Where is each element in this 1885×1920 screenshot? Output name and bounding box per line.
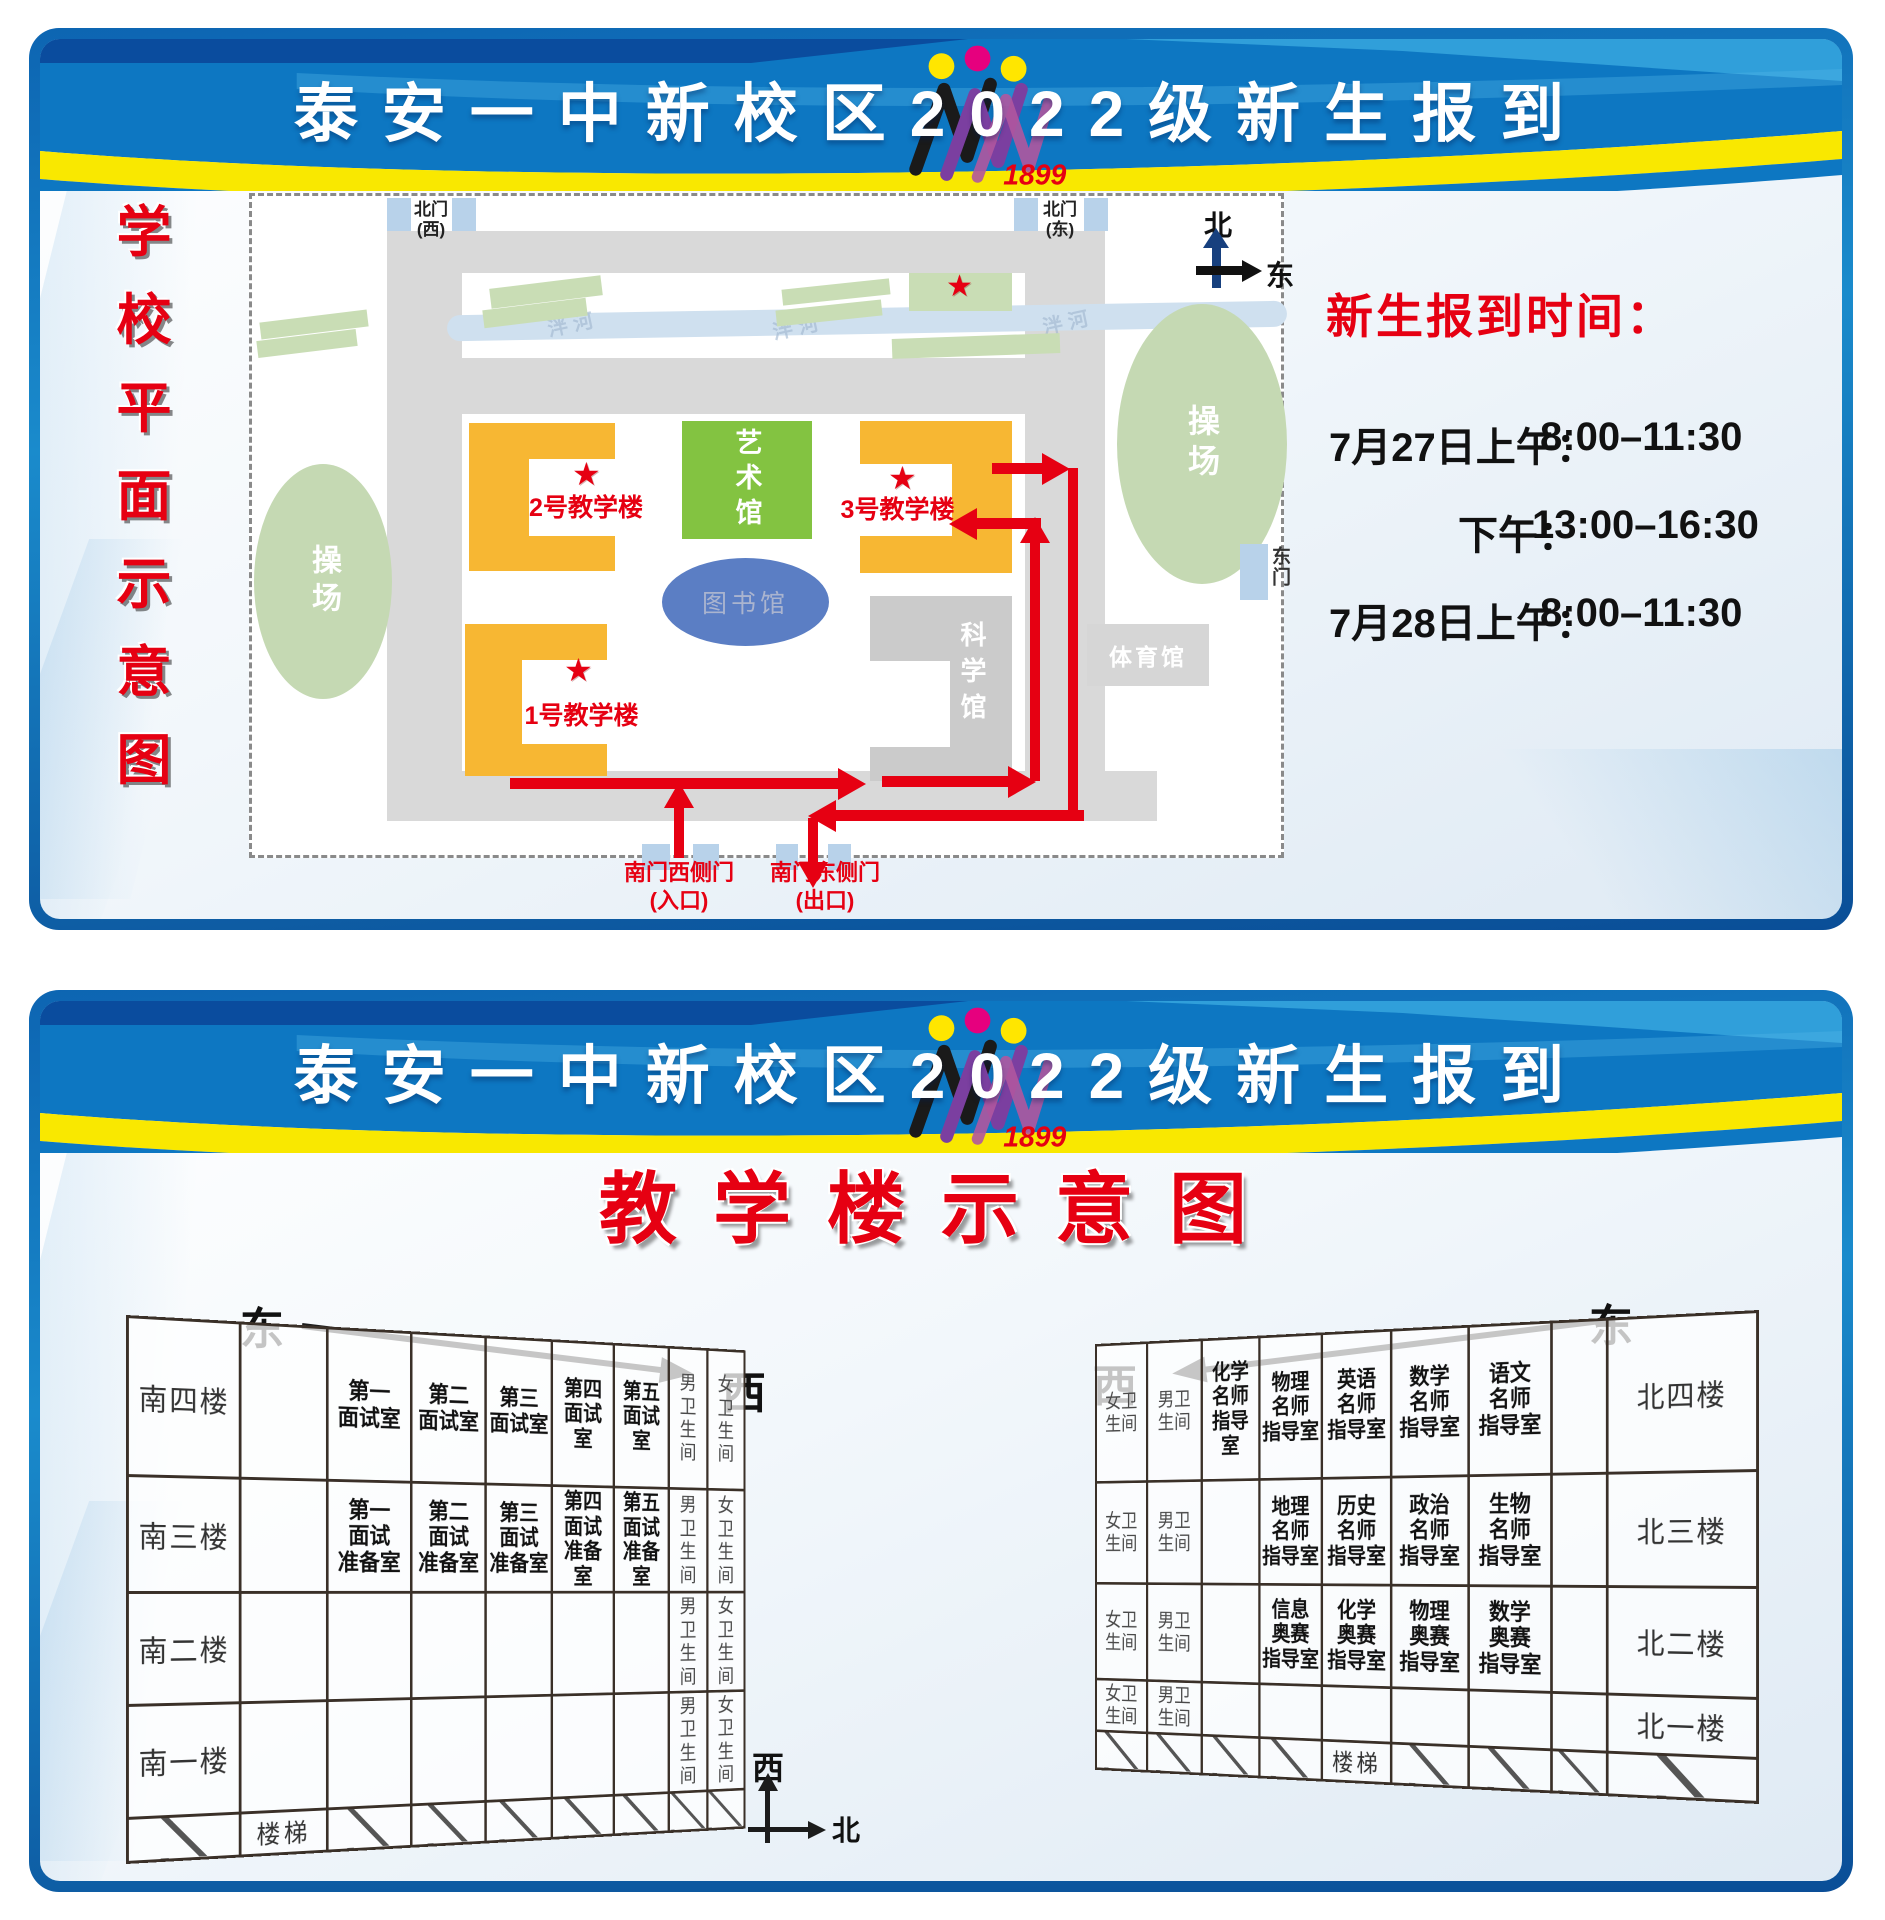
room-cell: 女卫 生间 — [707, 1691, 744, 1791]
empty-cell — [240, 1323, 327, 1480]
stairs-label: 楼梯 — [240, 1808, 327, 1855]
star-marker: ★ — [572, 458, 601, 490]
room-cell: 第五 面试室 — [614, 1344, 669, 1488]
room-cell: 男卫 生间 — [1147, 1680, 1202, 1734]
empty-cell — [1202, 1479, 1259, 1584]
south-gate-east-sublabel: (出口) — [750, 888, 900, 914]
star-marker: ★ — [564, 654, 593, 686]
room-cell: 第四 面试室 — [552, 1341, 613, 1487]
stairs-hatch-cell — [127, 1813, 240, 1862]
south-building-table: 南四楼第一 面试室第二 面试室第三 面试室第四 面试室第五 面试室男卫 生间女卫… — [126, 1315, 746, 1864]
room-cell: 女卫 生间 — [1096, 1583, 1147, 1680]
registration-time-heading: 新生报到时间： — [1326, 278, 1676, 347]
route-line-down — [1068, 468, 1078, 818]
stairs-hatch-cell — [1468, 1746, 1551, 1792]
south-gate-east-label: 南门东侧门 — [750, 860, 900, 886]
room-cell: 英语 名师 指导室 — [1322, 1330, 1391, 1478]
teaching-building-panel: 1899 泰安一中新校区2022级新生报到 教学楼示意图 东 西 西 东 南四楼… — [29, 990, 1853, 1892]
banner-title: 泰安一中新校区2022级新生报到 — [40, 63, 1842, 155]
stairs-hatch-cell — [669, 1790, 707, 1831]
room-cell: 第二 面试 准备室 — [411, 1482, 486, 1592]
stairs-hatch-cell — [707, 1789, 744, 1829]
north-gate-west-block — [452, 198, 476, 231]
time-line-2-value: 13:00–16:30 — [1532, 503, 1759, 548]
stairs-hatch-cell — [327, 1804, 411, 1850]
route-arrow-north-up — [1030, 541, 1040, 781]
empty-cell — [486, 1593, 552, 1697]
stairs-hatch-cell — [486, 1798, 552, 1842]
empty-cell — [1552, 1692, 1607, 1752]
floor-row: 南二楼男卫 生间女卫 生间 — [127, 1592, 744, 1705]
time-line-3-value: 8:00–11:30 — [1540, 591, 1742, 636]
north-gate-east-block — [1014, 198, 1038, 231]
empty-cell — [1552, 1319, 1607, 1474]
library: 图书馆 — [662, 558, 829, 646]
empty-cell — [240, 1593, 327, 1703]
room-cell: 男卫 生间 — [1147, 1584, 1202, 1683]
star-marker: ★ — [946, 272, 973, 302]
floor-label-cell: 南三楼 — [127, 1476, 240, 1593]
art-hall: 艺术馆 — [682, 421, 812, 539]
room-cell: 物理 奥赛 指导室 — [1391, 1585, 1468, 1690]
room-cell: 化学 名师 指导室 — [1202, 1337, 1259, 1481]
route-arrow-out-building3 — [992, 463, 1044, 474]
floor-row: 女卫 生间男卫 生间化学 名师 指导室物理 名师 指导室英语 名师 指导室数学 … — [1096, 1312, 1758, 1483]
road-north — [387, 231, 1105, 273]
teaching-building-panel-inner: 1899 泰安一中新校区2022级新生报到 教学楼示意图 东 西 西 东 南四楼… — [40, 1001, 1842, 1881]
diagram-title: 教学楼示意图 — [40, 1147, 1842, 1259]
side-title-char: 校 — [116, 293, 171, 348]
floor-label-cell: 南二楼 — [127, 1593, 240, 1706]
room-cell: 生物 名师 指导室 — [1468, 1474, 1551, 1586]
route-arrow-exit-down — [808, 818, 818, 864]
gym: 体育馆 — [1087, 624, 1209, 686]
compass-east-label: 东 — [1266, 254, 1294, 294]
playground-east: 操场 — [1117, 304, 1287, 584]
room-cell: 第三 面试室 — [486, 1337, 552, 1486]
empty-cell — [1202, 1584, 1259, 1684]
floor-label-cell: 南四楼 — [127, 1317, 240, 1479]
logo-year: 1899 — [1003, 160, 1066, 192]
floor-row: 南三楼第一 面试 准备室第二 面试 准备室第三 面试 准备室第四 面试 准备室第… — [127, 1476, 744, 1593]
room-cell: 男卫 生间 — [669, 1488, 707, 1592]
room-cell: 地理 名师 指导室 — [1259, 1478, 1322, 1584]
route-arrow-west-return — [834, 810, 1084, 821]
empty-cell — [1552, 1586, 1607, 1694]
side-title-char: 平 — [116, 381, 171, 436]
empty-cell — [411, 1593, 486, 1699]
science-hall-courtyard — [870, 661, 950, 747]
north-gate-east-label: 北门 (东) — [1038, 200, 1082, 239]
compass-north-arrow-icon — [748, 1827, 810, 1832]
empty-cell — [1552, 1473, 1607, 1586]
empty-cell — [1391, 1688, 1468, 1746]
north-gate-west-block — [387, 198, 411, 231]
decor-swoosh — [1386, 749, 1842, 919]
room-cell: 女卫 生间 — [1096, 1679, 1147, 1733]
empty-cell — [1322, 1686, 1391, 1743]
diagram-compass: 西 北 — [740, 1743, 870, 1853]
floor-label-cell: 北四楼 — [1607, 1312, 1757, 1474]
campus-map-panel-inner: 1899 泰安一中新校区2022级新生报到 学 校 平 面 示 意 图 泮河 泮… — [40, 39, 1842, 919]
room-cell: 女卫 生间 — [707, 1592, 744, 1691]
playground-label: 操场 — [1179, 404, 1225, 484]
room-cell: 男卫 生间 — [1147, 1340, 1202, 1482]
room-cell: 女卫 生间 — [707, 1489, 744, 1592]
banner-header: 1899 泰安一中新校区2022级新生报到 — [40, 1001, 1842, 1153]
floor-row: 南四楼第一 面试室第二 面试室第三 面试室第四 面试室第五 面试室男卫 生间女卫… — [127, 1317, 744, 1491]
empty-cell — [327, 1699, 411, 1809]
room-cell: 信息 奥赛 指导室 — [1259, 1584, 1322, 1685]
side-title-char: 图 — [116, 733, 171, 788]
side-title-char: 面 — [116, 469, 171, 524]
map-side-title: 学 校 平 面 示 意 图 — [102, 205, 186, 788]
road-middle — [387, 358, 1105, 414]
banner-header: 1899 泰安一中新校区2022级新生报到 — [40, 39, 1842, 191]
compass-north-label: 北 — [832, 1809, 860, 1849]
north-building-table: 女卫 生间男卫 生间化学 名师 指导室物理 名师 指导室英语 名师 指导室数学 … — [1095, 1310, 1759, 1804]
time-line-1-value: 8:00–11:30 — [1540, 415, 1742, 460]
campus-map: 泮河 泮河 泮河 ★ 操场 操场 ★ 2号教学楼 艺术馆 ★ 3号教学楼 — [249, 193, 1284, 858]
compass-east-arrow-icon — [1196, 266, 1244, 275]
star-marker: ★ — [888, 462, 917, 494]
stairs-hatch-cell — [1259, 1737, 1322, 1780]
room-cell: 女卫 生间 — [1096, 1481, 1147, 1583]
room-cell: 第五 面试 准备室 — [614, 1487, 669, 1592]
room-cell: 第四 面试 准备室 — [552, 1486, 613, 1593]
stairs-hatch-cell — [1202, 1735, 1259, 1777]
route-arrow-entrance-up — [674, 806, 684, 858]
empty-cell — [614, 1692, 669, 1794]
room-cell: 女卫 生间 — [1096, 1343, 1147, 1483]
room-cell: 男卫 生间 — [669, 1691, 707, 1792]
empty-cell — [552, 1694, 613, 1798]
stairs-hatch-cell — [1607, 1752, 1757, 1802]
empty-cell — [486, 1695, 552, 1801]
compass-east-arrow-icon — [1242, 260, 1262, 282]
room-cell: 化学 奥赛 指导室 — [1322, 1585, 1391, 1688]
floor-label-cell: 北二楼 — [1607, 1587, 1757, 1699]
room-cell: 女卫 生间 — [707, 1349, 744, 1490]
room-cell: 男卫 生间 — [1147, 1481, 1202, 1584]
room-cell: 数学 名师 指导室 — [1391, 1326, 1468, 1477]
stairs-hatch-cell — [614, 1792, 669, 1834]
building-2-label: 2号教学楼 — [520, 496, 652, 521]
campus-map-panel: 1899 泰安一中新校区2022级新生报到 学 校 平 面 示 意 图 泮河 泮… — [29, 28, 1853, 930]
south-gate-west-label: 南门西侧门 — [604, 860, 754, 886]
room-cell: 语文 名师 指导室 — [1468, 1322, 1551, 1476]
library-label: 图书馆 — [702, 584, 789, 620]
banner-title: 泰安一中新校区2022级新生报到 — [40, 1025, 1842, 1117]
compass-west-arrow-icon — [765, 1787, 770, 1843]
room-cell: 政治 名师 指导室 — [1391, 1476, 1468, 1586]
gym-label: 体育馆 — [1109, 638, 1187, 672]
empty-cell — [240, 1701, 327, 1813]
stairs-label: 楼梯 — [1322, 1740, 1391, 1784]
map-compass: 北 东 — [1190, 204, 1300, 299]
floor-label-cell: 南一楼 — [127, 1703, 240, 1818]
side-title-char: 示 — [116, 557, 171, 612]
art-hall-label: 艺术馆 — [728, 428, 767, 533]
stairs-hatch-cell — [411, 1801, 486, 1846]
room-cell: 男卫 生间 — [669, 1347, 707, 1489]
room-cell: 第一 面试 准备室 — [327, 1480, 411, 1592]
empty-cell — [240, 1478, 327, 1593]
empty-cell — [327, 1593, 411, 1701]
route-arrow-into-building3 — [975, 518, 1041, 529]
empty-cell — [552, 1593, 613, 1696]
route-arrow-east-2 — [882, 776, 1010, 787]
north-gate-east-block — [1084, 198, 1108, 231]
empty-cell — [1259, 1684, 1322, 1740]
floor-label-cell: 北一楼 — [1607, 1694, 1757, 1758]
north-gate-west-label: 北门 (西) — [410, 200, 452, 239]
room-cell: 物理 名师 指导室 — [1259, 1334, 1322, 1480]
empty-cell — [1202, 1682, 1259, 1737]
building-1-label: 1号教学楼 — [514, 704, 649, 729]
room-cell: 第一 面试室 — [327, 1328, 411, 1482]
stairs-hatch-cell — [1391, 1743, 1468, 1788]
east-gate-block — [1240, 544, 1268, 600]
side-title-char: 学 — [116, 205, 171, 260]
floor-label-cell: 北三楼 — [1607, 1471, 1757, 1588]
room-cell: 第三 面试 准备室 — [486, 1484, 552, 1593]
playground-west: 操场 — [254, 464, 392, 699]
building-3-label: 3号教学楼 — [830, 498, 965, 523]
route-arrow-east-1 — [510, 778, 840, 789]
floor-row: 女卫 生间男卫 生间地理 名师 指导室历史 名师 指导室政治 名师 指导室生物 … — [1096, 1471, 1758, 1588]
room-cell: 历史 名师 指导室 — [1322, 1477, 1391, 1585]
stairs-hatch-cell — [1552, 1750, 1607, 1795]
science-hall-label: 科学馆 — [954, 621, 991, 781]
side-title-char: 意 — [116, 645, 171, 700]
playground-label: 操场 — [301, 544, 345, 620]
room-cell: 第二 面试室 — [411, 1333, 486, 1484]
empty-cell — [614, 1592, 669, 1693]
empty-cell — [1468, 1690, 1551, 1750]
stairs-hatch-cell — [1096, 1731, 1147, 1772]
room-cell: 男卫 生间 — [669, 1592, 707, 1692]
empty-cell — [411, 1697, 486, 1805]
room-cell: 数学 奥赛 指导室 — [1468, 1586, 1551, 1693]
compass-north-arrow-icon — [808, 1821, 826, 1839]
stairs-hatch-cell — [552, 1795, 613, 1838]
stairs-hatch-cell — [1147, 1733, 1202, 1774]
south-gate-west-sublabel: (入口) — [604, 888, 754, 914]
east-gate-label: 东门 — [1266, 546, 1293, 606]
